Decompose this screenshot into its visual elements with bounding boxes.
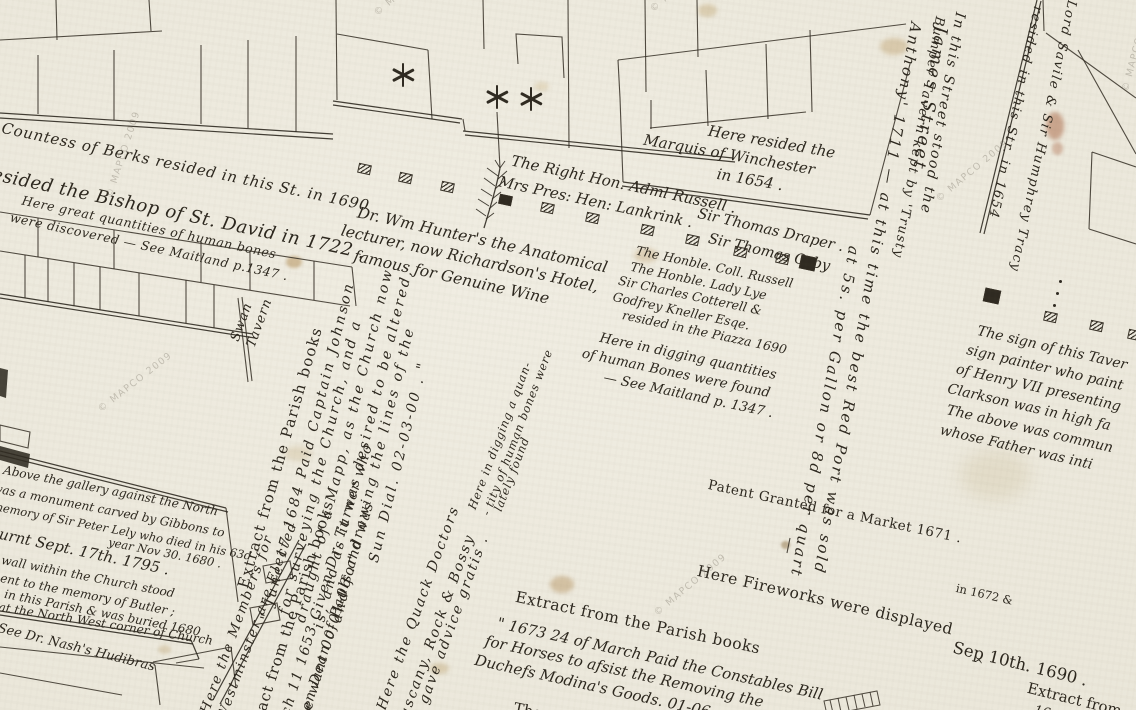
mapco-watermark: © MAPCO 2009 (1120, 2, 1136, 93)
paper-stain (550, 576, 574, 593)
colonnade-dash-marker (585, 212, 600, 224)
colonnade-dash-marker (685, 234, 700, 246)
dotted-line-dot (1059, 280, 1062, 283)
colonnade-dash-marker (398, 172, 413, 184)
text-fragment-bottom: The (511, 698, 543, 710)
mapco-watermark: © MAPCO 2009 (372, 0, 449, 18)
paper-stain (1052, 142, 1063, 155)
asterisk-marker (485, 85, 509, 109)
colonnade-dash-marker (1127, 329, 1136, 341)
paper-stain (698, 4, 717, 17)
colonnade-dash-marker (1089, 320, 1104, 332)
paper-stain (158, 645, 171, 654)
antique-map-scan: Countess of Berks resided in this St. in… (0, 0, 1136, 710)
caret-mark: ^ (971, 655, 985, 674)
asterisk-marker (519, 87, 543, 111)
note-fireworks-date: Sep 10th. 1690 . (950, 636, 1090, 693)
colonnade-dash-marker (498, 194, 513, 206)
asterisk-marker (391, 63, 415, 87)
colonnade-dash-marker (640, 224, 655, 236)
mapco-watermark: © MAPCO 2009 (96, 350, 175, 415)
note-fireworks-1672: in 1672 & (954, 580, 1014, 609)
annotation-line: The (511, 698, 543, 710)
colonnade-dash-marker (357, 163, 372, 175)
colonnade-dash-marker (540, 202, 555, 214)
colonnade-dash-marker (440, 181, 455, 193)
hatched-structure (824, 691, 880, 710)
solid-block-marks (0, 368, 30, 468)
colonnade-dash-marker (983, 287, 1002, 304)
colonnade-dash-marker (799, 254, 818, 271)
annotation-line: ^ (971, 655, 985, 674)
annotation-line: Anthony' 1711 — at this time the best Re… (807, 20, 926, 576)
note-tavern-sign: The sign of this Taversign painter who p… (938, 318, 1134, 480)
colonnade-dash-marker (1043, 311, 1058, 323)
annotation-line: in 1672 & (954, 580, 1014, 609)
note-bumper-tavern-3: Anthony' 1711 — at this time the best Re… (807, 20, 926, 576)
dotted-line-dot (1053, 304, 1056, 307)
dotted-line-dot (1056, 292, 1059, 295)
mapco-watermark: © MAPCO 2009 (648, 0, 725, 14)
annotation-line: Sep 10th. 1690 . (950, 636, 1090, 693)
